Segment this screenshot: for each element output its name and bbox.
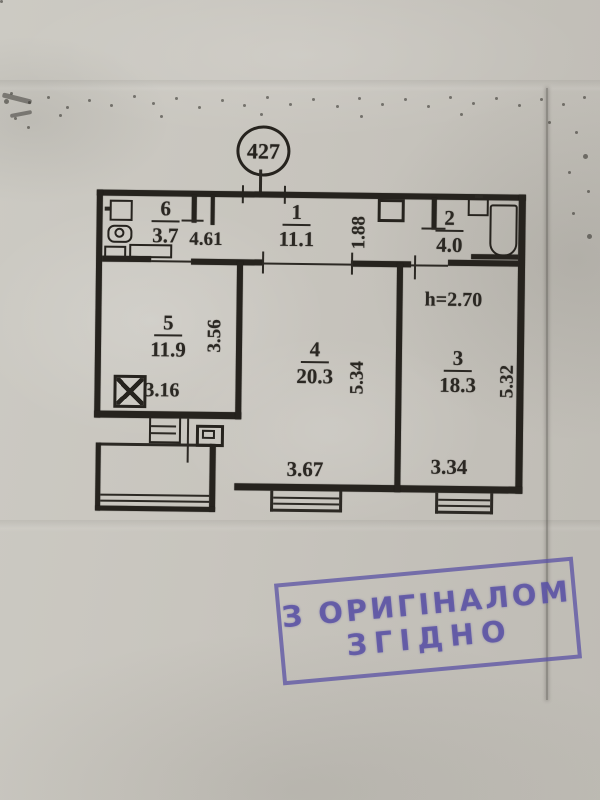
- duct-box: [378, 199, 405, 222]
- dim-room3-depth: 5.32: [496, 358, 519, 404]
- duct-box: [202, 430, 215, 439]
- window-symbol: [151, 425, 176, 427]
- room-5-number: 5: [154, 311, 183, 336]
- room-1-label: 1 11.1: [264, 201, 329, 251]
- dim-room4-depth: 5.34: [346, 355, 369, 401]
- room-4-number: 4: [301, 338, 330, 363]
- wall: [209, 444, 216, 512]
- apartment-number-badge: 427: [236, 125, 291, 177]
- cabinet-icon: [104, 246, 126, 259]
- room-4-label: 4 20.3: [285, 338, 346, 388]
- window-symbol: [438, 499, 490, 502]
- room-3-number: 3: [443, 347, 472, 372]
- scanned-paper: 427: [0, 0, 600, 800]
- room-5-area: 11.9: [150, 336, 186, 360]
- bathtub-icon: [489, 204, 518, 256]
- scan-noise-speckles: [0, 0, 3, 3]
- window-symbol: [100, 500, 209, 503]
- room-2-number: 2: [435, 207, 464, 232]
- dim-hall-width: 4.61: [189, 229, 223, 251]
- wall: [191, 259, 263, 266]
- tap-icon: [475, 195, 483, 198]
- wall: [394, 263, 403, 492]
- tap-icon: [105, 207, 111, 211]
- wall: [234, 483, 522, 494]
- sink-icon: [110, 200, 133, 221]
- dim-vent-shaft: 3.16: [144, 379, 179, 402]
- dim-room3-width: 3.34: [430, 455, 467, 480]
- apartment-number: 427: [247, 138, 280, 164]
- door-opening-line: [263, 263, 351, 266]
- room-1-area: 11.1: [278, 226, 314, 250]
- vent-shaft-icon: [113, 375, 146, 408]
- window-symbol: [273, 497, 339, 500]
- room-6-label: 6 3.7: [139, 197, 192, 247]
- wall: [192, 195, 197, 223]
- room-3-label: 3 18.3: [427, 347, 488, 397]
- window-symbol: [151, 432, 176, 434]
- wall: [94, 190, 103, 418]
- toilet-bowl-icon: [114, 228, 124, 238]
- ceiling-height-note: h=2.70: [424, 289, 482, 313]
- balcony-window-icon: [149, 416, 181, 443]
- room-6-number: 6: [151, 197, 180, 222]
- dim-room4-width: 3.67: [286, 457, 323, 482]
- room-5-label: 5 11.9: [140, 311, 197, 361]
- dimension-tick: [262, 252, 264, 274]
- room-2-label: 2 4.0: [421, 206, 478, 256]
- window-symbol: [435, 511, 493, 515]
- dim-hall-depth: 1.88: [348, 210, 371, 256]
- room-2-area: 4.0: [436, 232, 463, 256]
- window-symbol: [273, 503, 339, 506]
- dimension-tick: [414, 255, 416, 279]
- wall: [471, 254, 518, 260]
- dimension-tick: [351, 253, 353, 275]
- room-4-area: 20.3: [296, 363, 333, 387]
- window-symbol: [438, 505, 490, 508]
- door-opening-line: [151, 260, 191, 262]
- wall: [235, 261, 243, 419]
- dim-room5-depth: 3.56: [204, 313, 227, 359]
- window-symbol: [100, 494, 209, 497]
- room-6-area: 3.7: [152, 222, 179, 246]
- wall: [211, 195, 215, 225]
- room-3-area: 18.3: [439, 372, 476, 396]
- room-1-number: 1: [282, 201, 311, 226]
- wall: [448, 260, 518, 267]
- door-opening-line: [411, 264, 448, 266]
- balcony-door-line: [187, 419, 190, 463]
- wall: [95, 506, 215, 512]
- window-symbol: [270, 509, 342, 513]
